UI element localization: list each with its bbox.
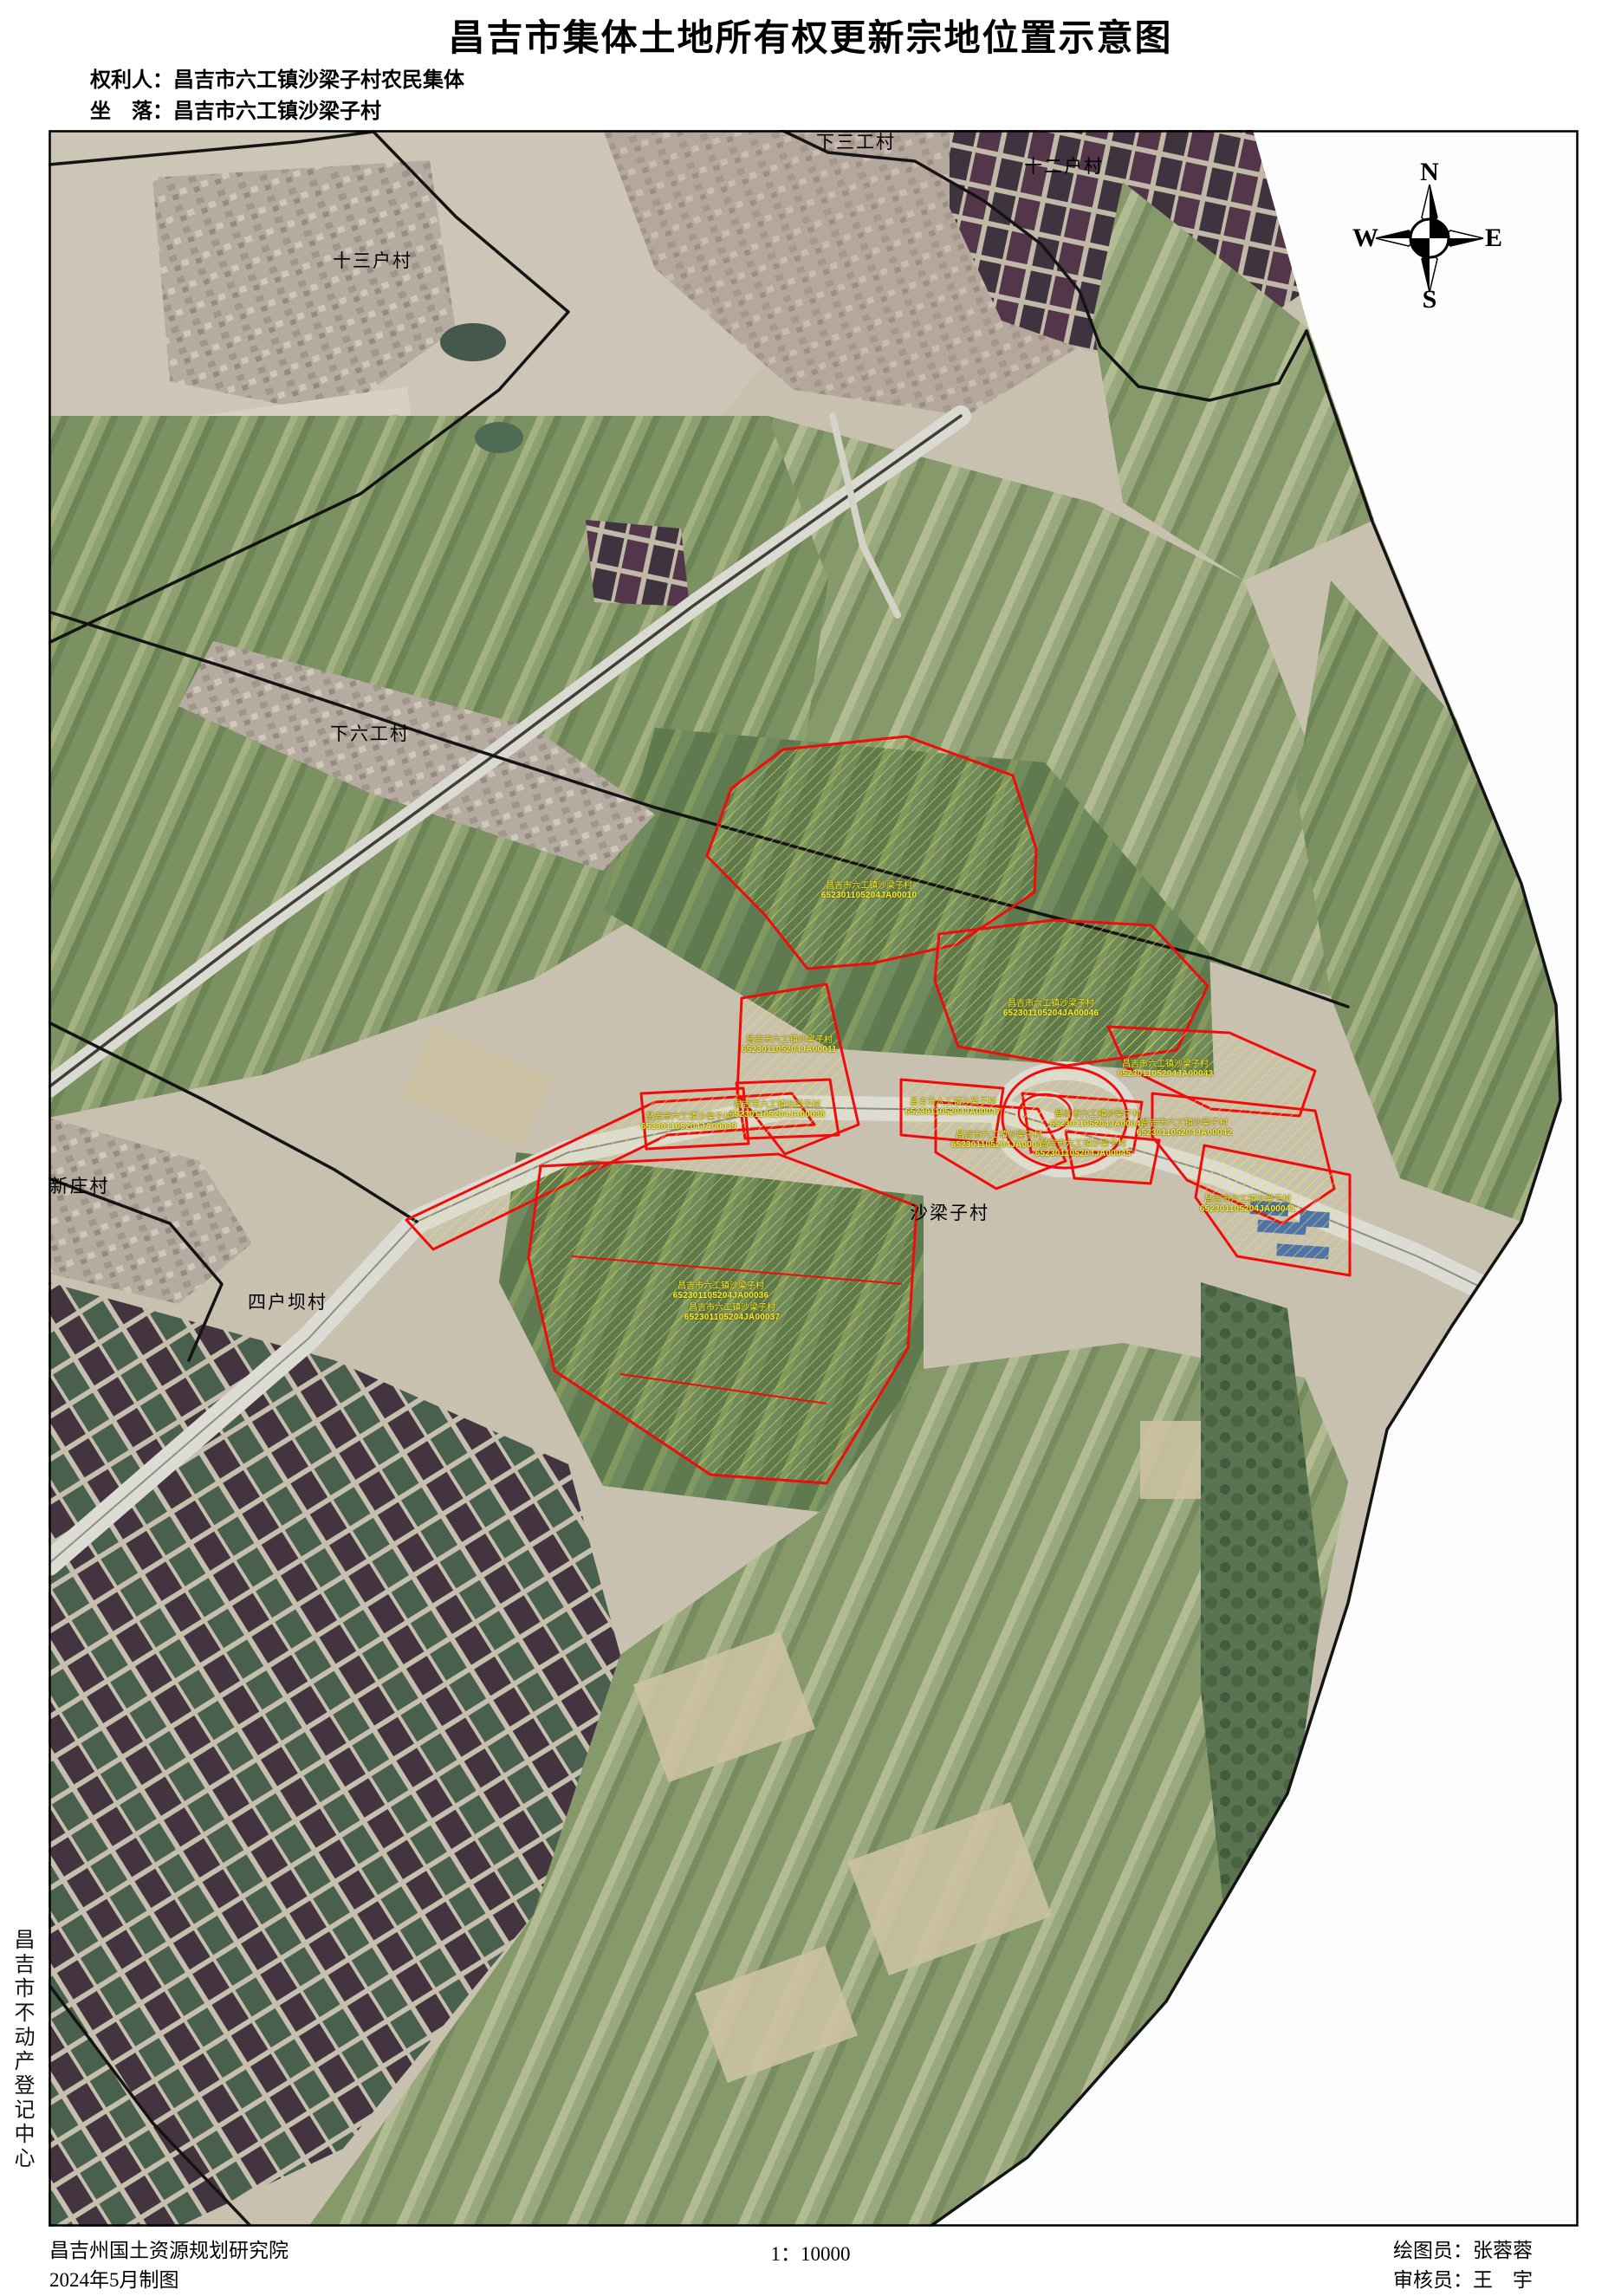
footer-drafter: 绘图员：张蓉蓉 — [1393, 2234, 1533, 2263]
compass-west-label: W — [1352, 224, 1378, 252]
page-title: 昌吉市集体土地所有权更新宗地位置示意图 — [0, 9, 1621, 62]
compass-north-label: N — [1420, 158, 1439, 186]
map-canvas: N S W E — [49, 130, 1579, 2227]
compass-east-label: E — [1485, 224, 1502, 252]
satellite-map: N S W E — [49, 130, 1579, 2227]
rights-holder-line: 权利人：昌吉市六工镇沙梁子村农民集体 — [90, 62, 464, 93]
footer-reviewer: 审核员：王 宇 — [1393, 2263, 1533, 2293]
map-scale: 1：10000 — [0, 2237, 1621, 2267]
compass-south-label: S — [1423, 285, 1437, 314]
compass-icon: N S W E — [1352, 158, 1502, 314]
registry-center-side-text: 昌吉市不动产登记中心 — [7, 1929, 37, 2171]
location-line: 坐 落：昌吉市六工镇沙梁子村 — [90, 94, 381, 124]
map-sheet-page: 昌吉市集体土地所有权更新宗地位置示意图 权利人：昌吉市六工镇沙梁子村农民集体 坐… — [0, 0, 1621, 2296]
footer-date: 2024年5月制图 — [49, 2263, 179, 2293]
